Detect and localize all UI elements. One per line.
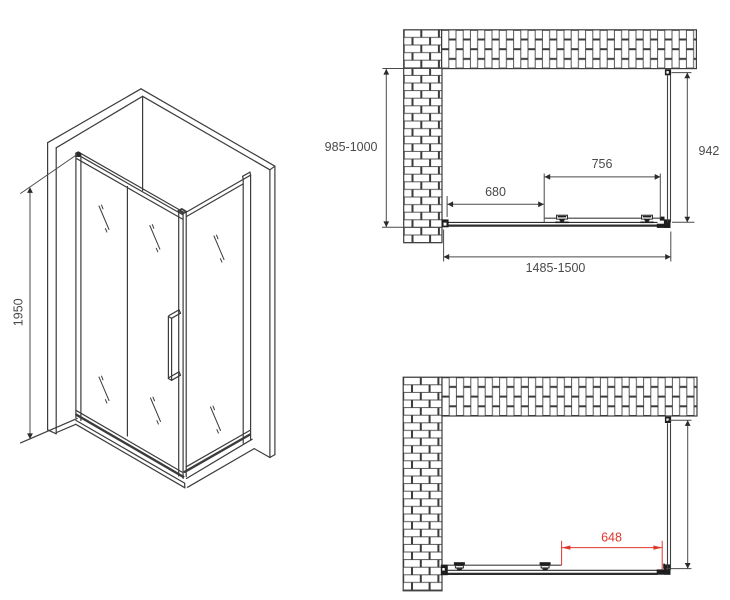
svg-text:1485-1500: 1485-1500 xyxy=(526,261,586,275)
svg-text:756: 756 xyxy=(592,157,613,171)
svg-text:1950: 1950 xyxy=(11,298,25,326)
svg-text:942: 942 xyxy=(699,144,720,158)
svg-text:985-1000: 985-1000 xyxy=(325,140,378,154)
svg-text:680: 680 xyxy=(485,185,506,199)
svg-text:648: 648 xyxy=(601,531,622,545)
